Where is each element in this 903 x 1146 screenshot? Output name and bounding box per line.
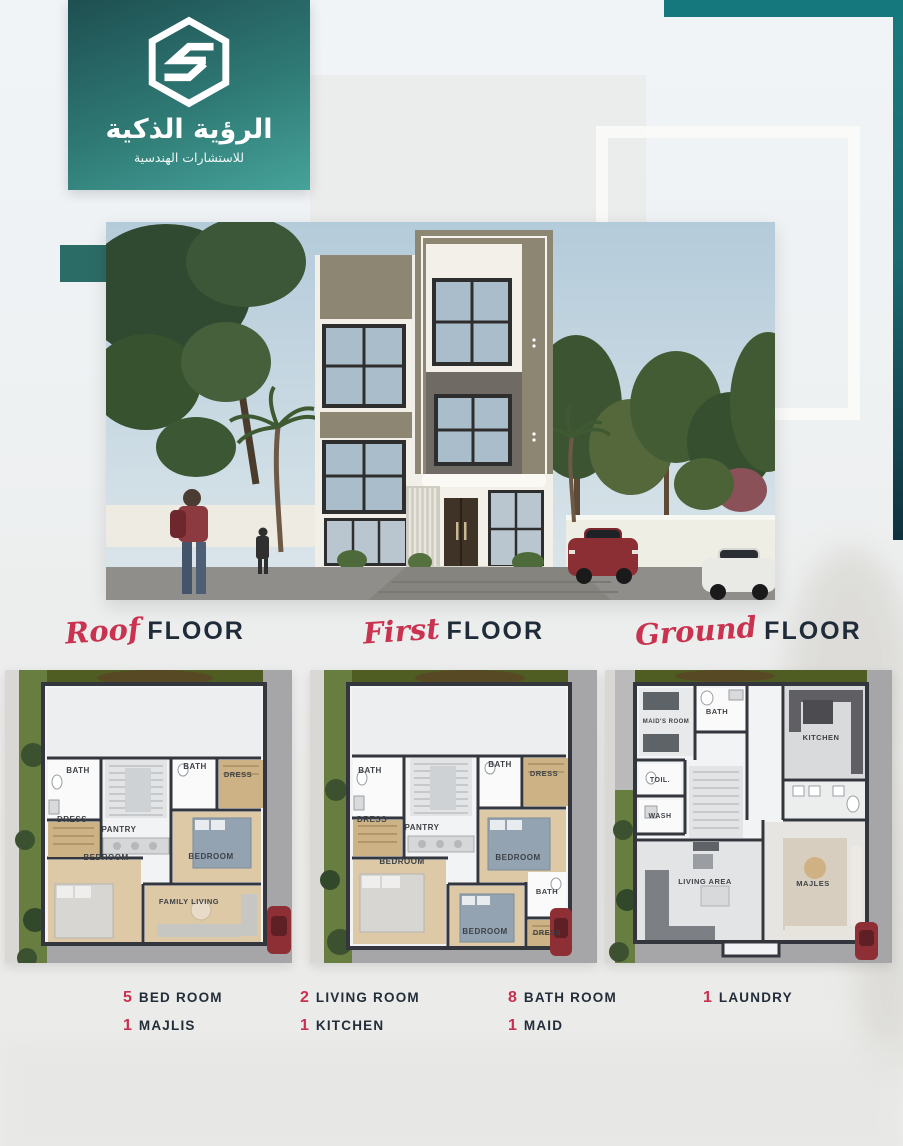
stat-count: 1 [508, 1017, 517, 1035]
stat-laundry: 1 LAUNDRY [703, 989, 793, 1007]
building-render-image [106, 222, 775, 600]
room-label-bedroom: BEDROOM [83, 853, 128, 862]
room-label-dress: DRESS [57, 815, 87, 824]
brand-title: الرؤية الذكية [106, 116, 273, 143]
room-label-bath: BATH [358, 766, 382, 775]
room-label-dress: DRESS [530, 769, 558, 778]
room-label-bath: BATH [66, 766, 90, 775]
room-label-living-area: LIVING AREA [678, 877, 732, 886]
room-label-dress: DRESS [533, 928, 561, 937]
room-label-bedroom: BEDROOM [462, 927, 507, 936]
stat-count: 1 [123, 1017, 132, 1035]
room-label-bedroom: BEDROOM [188, 852, 233, 861]
floor-plan-ground: MAID'S ROOM BATH KITCHEN TOIL. WASH LIVI… [605, 670, 892, 963]
room-label-family-living: FAMILY LIVING [159, 897, 219, 906]
floor-plan-first: BATH DRESS BATH DRESS PANTRY BEDROOM BED… [310, 670, 597, 963]
stat-living-room: 2 LIVING ROOM [300, 989, 420, 1007]
stat-count: 1 [300, 1017, 309, 1035]
room-label-bath: BATH [488, 760, 512, 769]
building-left-wing [315, 255, 415, 567]
stat-count: 2 [300, 989, 309, 1007]
stat-label: BED ROOM [139, 990, 223, 1005]
room-label-dress: DRESS [357, 815, 387, 824]
heading-ground-floor: Ground FLOOR [605, 610, 892, 652]
company-logo: الرؤية الذكية للاستشارات الهندسية [68, 0, 310, 190]
top-teal-bar [664, 0, 903, 17]
stat-count: 8 [508, 989, 517, 1007]
stat-kitchen: 1 KITCHEN [300, 1017, 384, 1035]
stat-label: BATH ROOM [524, 990, 617, 1005]
brand-subtitle: للاستشارات الهندسية [134, 150, 244, 165]
room-label-wash: WASH [649, 813, 672, 820]
stat-count: 5 [123, 989, 132, 1007]
room-label-kitchen: KITCHEN [803, 733, 840, 742]
stat-maid: 1 MAID [508, 1017, 563, 1035]
stat-label: LIVING ROOM [316, 990, 420, 1005]
stat-label: KITCHEN [316, 1018, 384, 1033]
ground-floor-label: FLOOR [764, 617, 862, 646]
room-label-bath: BATH [183, 762, 207, 771]
room-label-pantry: PANTRY [405, 823, 440, 832]
stat-label: MAID [524, 1018, 563, 1033]
room-label-dress: DRESS [224, 770, 252, 779]
bg-ground-haze [0, 1040, 903, 1146]
stat-bath-room: 8 BATH ROOM [508, 989, 617, 1007]
wall-left [106, 505, 315, 547]
teal-accent-square [60, 245, 106, 282]
building-render-scene [106, 222, 775, 600]
room-label-pantry: PANTRY [102, 825, 137, 834]
hexagon-s-logo-icon [143, 16, 235, 108]
stat-count: 1 [703, 989, 712, 1007]
roof-floor-label: FLOOR [147, 617, 245, 646]
stat-label: MAJLIS [139, 1018, 196, 1033]
room-label-bath: BATH [706, 707, 728, 716]
room-label-maids-room: MAID'S ROOM [643, 719, 690, 725]
room-label-bedroom: BEDROOM [379, 857, 424, 866]
building-center-tower [406, 230, 553, 571]
room-label-majles: MAJLES [796, 879, 829, 888]
ground-script: Ground [634, 610, 758, 652]
heading-roof-floor: Roof FLOOR [5, 610, 305, 652]
roof-script: Roof [64, 611, 141, 650]
first-floor-label: FLOOR [447, 617, 545, 646]
first-script: First [362, 611, 441, 650]
room-label-bedroom: BEDROOM [495, 853, 540, 862]
stat-bed-room: 5 BED ROOM [123, 989, 223, 1007]
right-teal-strip [893, 17, 903, 540]
room-label-bath: BATH [536, 887, 558, 896]
room-label-toilet: TOIL. [650, 777, 670, 784]
stat-majlis: 1 MAJLIS [123, 1017, 196, 1035]
floor-plan-roof: BATH DRESS BATH DRESS PANTRY BEDROOM BED… [5, 670, 292, 963]
wall-right-cap [566, 515, 775, 520]
stat-label: LAUNDRY [719, 990, 793, 1005]
poster: الرؤية الذكية للاستشارات الهندسية [0, 0, 903, 1146]
heading-first-floor: First FLOOR [310, 610, 597, 652]
